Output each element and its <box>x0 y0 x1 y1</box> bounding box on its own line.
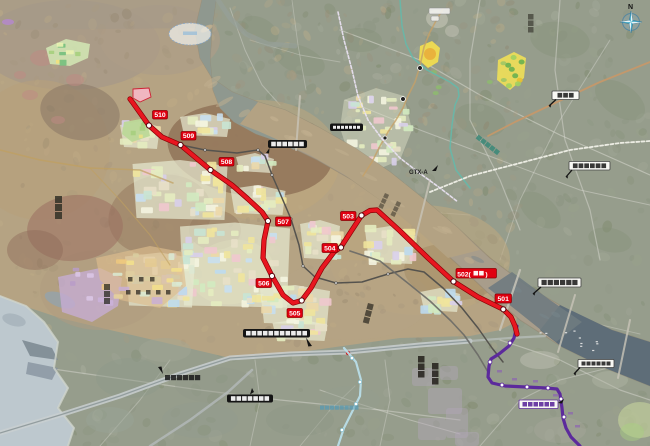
svg-text:502(: 502( <box>457 271 471 278</box>
svg-text:507: 507 <box>278 219 290 226</box>
svg-text:503: 503 <box>343 213 355 220</box>
svg-text:GTX-A: GTX-A <box>409 170 428 176</box>
svg-text:505: 505 <box>289 310 301 317</box>
svg-text:504: 504 <box>324 245 336 252</box>
svg-text:N: N <box>628 4 633 11</box>
svg-text:510: 510 <box>154 112 166 119</box>
svg-text:506: 506 <box>258 280 270 287</box>
svg-text:509: 509 <box>183 133 195 140</box>
svg-text:501: 501 <box>498 296 510 303</box>
svg-text:): ) <box>485 271 487 278</box>
svg-text:508: 508 <box>221 159 233 166</box>
